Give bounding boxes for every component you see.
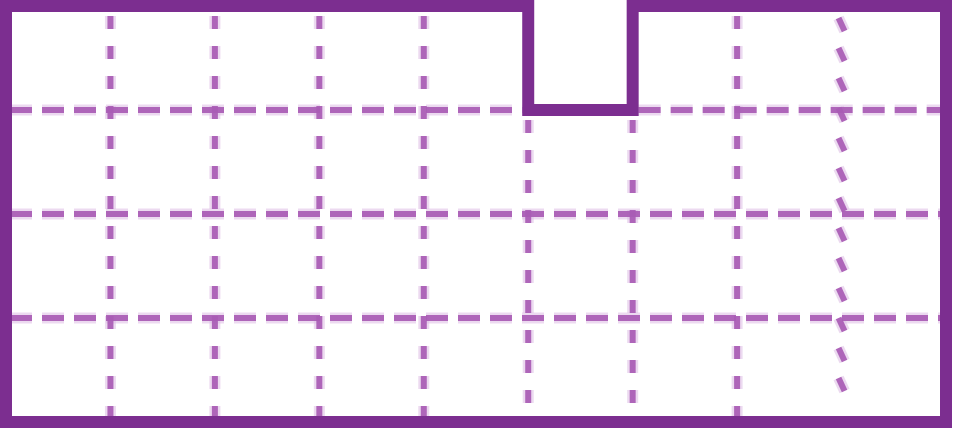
grid-figure-svg bbox=[0, 0, 960, 430]
grid-figure bbox=[0, 0, 960, 430]
